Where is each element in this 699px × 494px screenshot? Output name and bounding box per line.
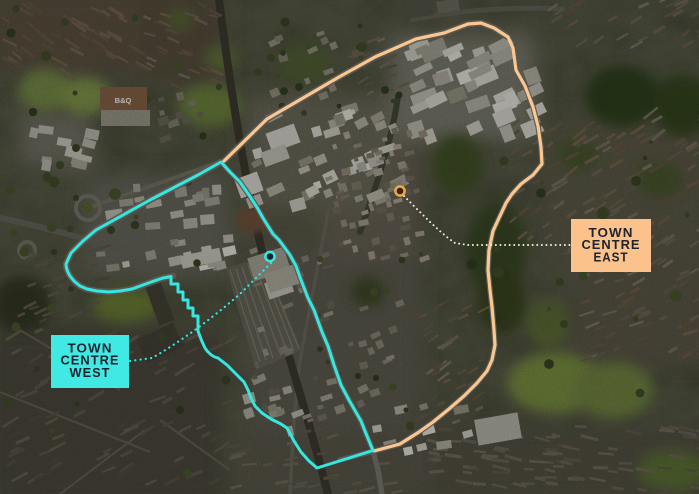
svg-text:WEST: WEST	[70, 365, 111, 380]
svg-text:EAST: EAST	[594, 249, 629, 264]
